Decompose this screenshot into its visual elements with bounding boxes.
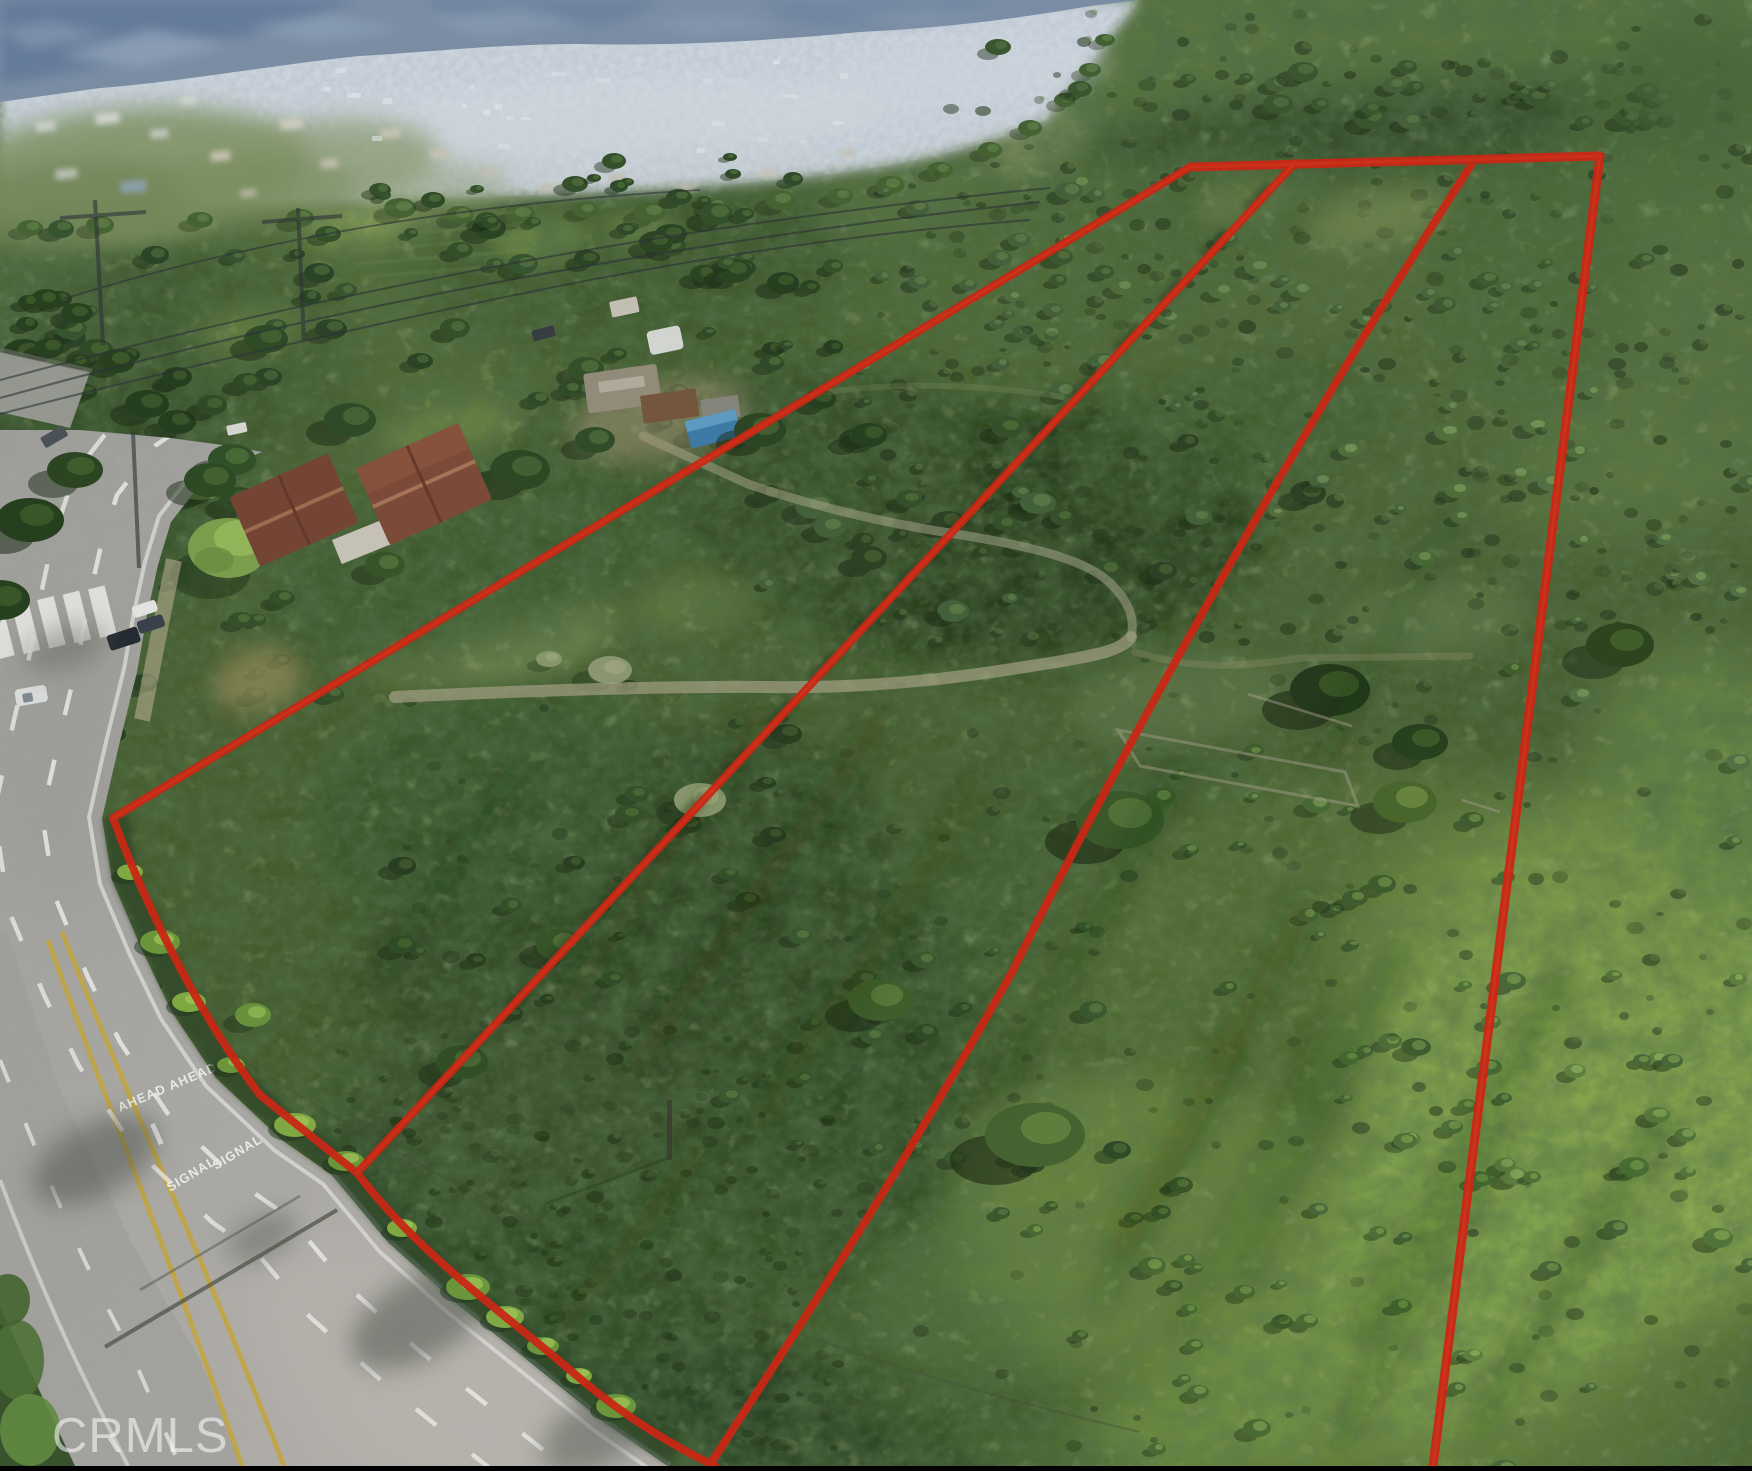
svg-text:CRMLS: CRMLS	[52, 1409, 229, 1463]
